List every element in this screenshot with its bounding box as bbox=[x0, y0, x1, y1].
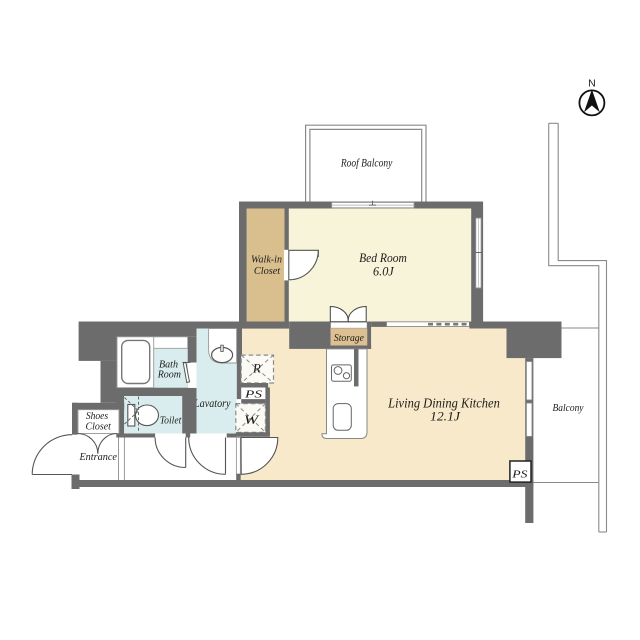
svg-text:N: N bbox=[588, 78, 596, 90]
svg-text:R: R bbox=[252, 360, 261, 375]
svg-text:Closet: Closet bbox=[86, 422, 112, 433]
svg-text:Shoes: Shoes bbox=[86, 411, 108, 422]
svg-text:6.0J: 6.0J bbox=[373, 264, 395, 278]
svg-text:Roof Balcony: Roof Balcony bbox=[340, 155, 393, 169]
svg-text:Bed Room: Bed Room bbox=[359, 251, 407, 265]
svg-text:Walk-in: Walk-in bbox=[251, 255, 282, 266]
svg-text:Room: Room bbox=[157, 369, 181, 381]
svg-text:Entrance: Entrance bbox=[79, 451, 118, 463]
svg-text:PS: PS bbox=[511, 468, 528, 480]
svg-text:Lavatory: Lavatory bbox=[193, 398, 230, 410]
svg-text:Storage: Storage bbox=[334, 333, 364, 344]
svg-text:12.1J: 12.1J bbox=[430, 408, 461, 423]
svg-text:W: W bbox=[244, 412, 260, 427]
svg-text:Toilet: Toilet bbox=[160, 414, 182, 426]
svg-text:PS: PS bbox=[244, 388, 263, 400]
svg-text:Closet: Closet bbox=[254, 266, 281, 277]
svg-text:Balcony: Balcony bbox=[553, 403, 584, 414]
